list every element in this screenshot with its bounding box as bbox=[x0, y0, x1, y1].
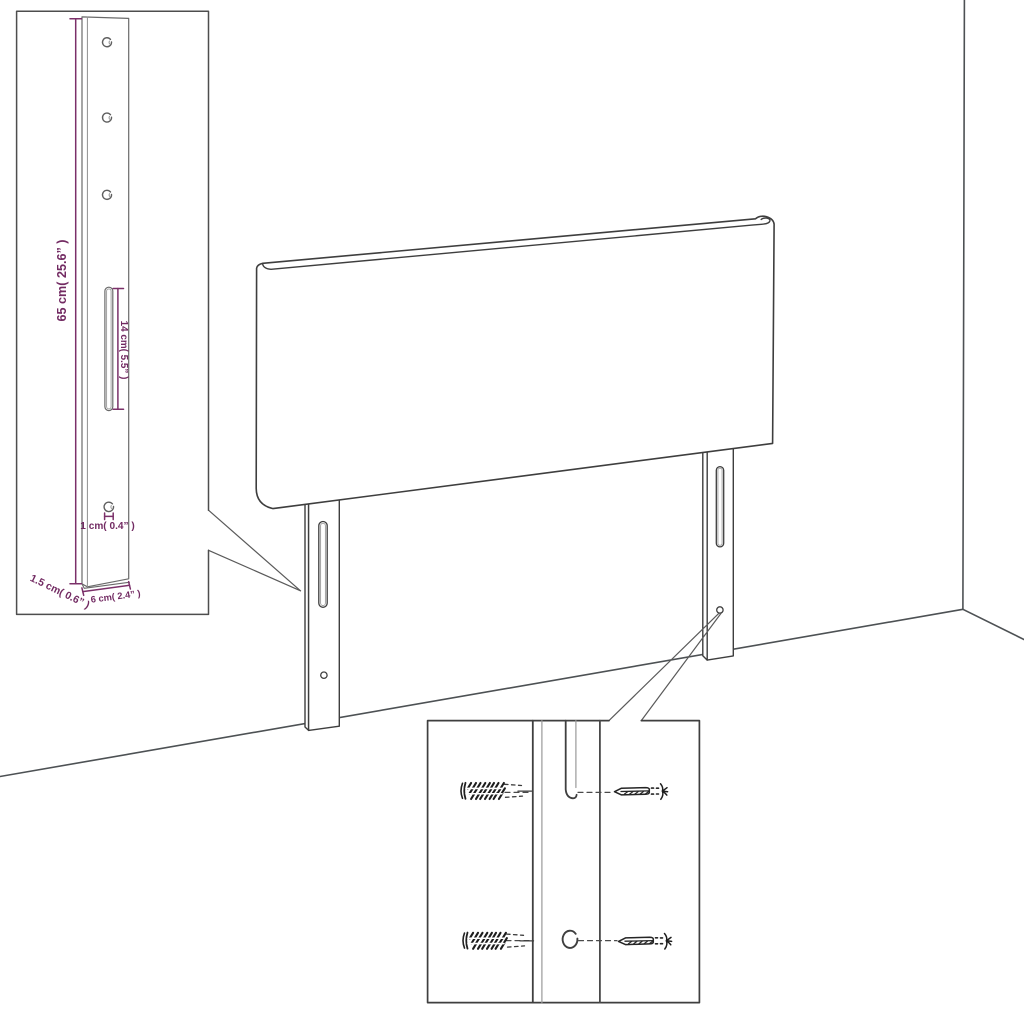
svg-text:6 cm( 2.4” ): 6 cm( 2.4” ) bbox=[90, 588, 141, 604]
svg-text:65 cm( 25.6” ): 65 cm( 25.6” ) bbox=[55, 240, 69, 322]
svg-text:14 cm( 5.5” ): 14 cm( 5.5” ) bbox=[118, 321, 129, 380]
svg-text:1 cm( 0.4” ): 1 cm( 0.4” ) bbox=[80, 521, 134, 532]
